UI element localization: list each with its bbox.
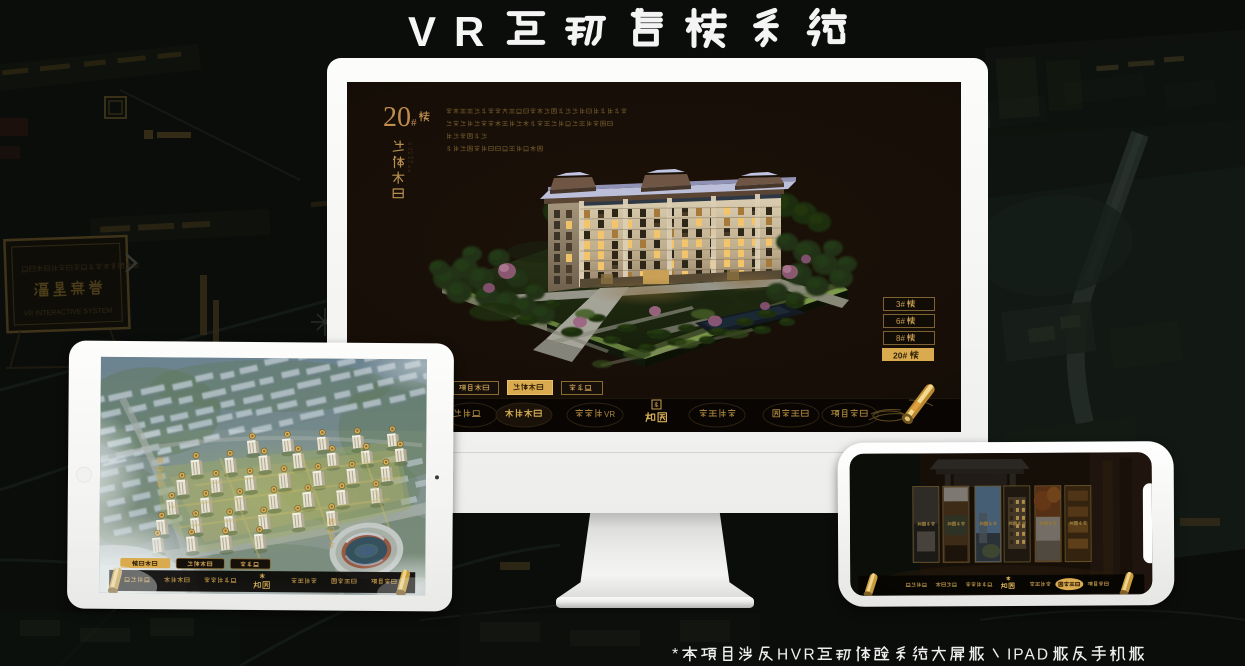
svg-text:6#: 6# <box>896 317 905 326</box>
svg-text:HVR: HVR <box>777 647 817 664</box>
svg-text:20#: 20# <box>893 351 907 361</box>
svg-text:8#: 8# <box>896 334 905 343</box>
svg-text:IPAD: IPAD <box>1007 647 1050 664</box>
svg-text:*: * <box>672 646 678 663</box>
svg-text:VR: VR <box>604 410 615 419</box>
svg-text:3#: 3# <box>896 300 905 309</box>
svg-text:VR: VR <box>408 8 502 55</box>
